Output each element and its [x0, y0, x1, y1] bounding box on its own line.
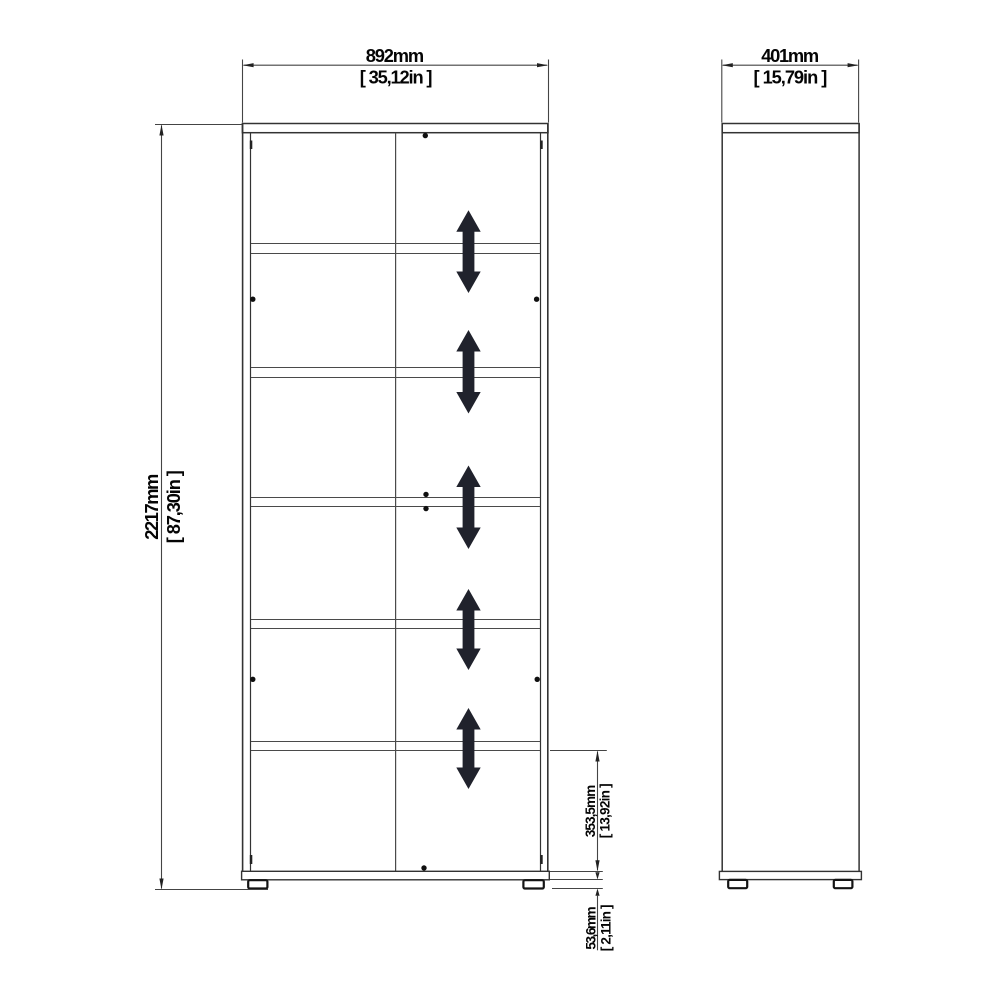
svg-text:353,5mm: 353,5mm	[583, 785, 598, 837]
svg-text:2217mm: 2217mm	[141, 474, 162, 540]
svg-text:53,6mm: 53,6mm	[584, 906, 599, 949]
svg-text:[ 2,11in ]: [ 2,11in ]	[598, 904, 613, 951]
svg-text:[ 15,79in ]: [ 15,79in ]	[754, 66, 828, 87]
svg-text:401mm: 401mm	[761, 45, 819, 66]
svg-text:892mm: 892mm	[366, 45, 424, 66]
svg-text:[ 13,92in ]: [ 13,92in ]	[598, 783, 613, 838]
svg-text:[ 87,30in ]: [ 87,30in ]	[163, 470, 184, 543]
svg-text:[ 35,12in ]: [ 35,12in ]	[360, 66, 433, 87]
